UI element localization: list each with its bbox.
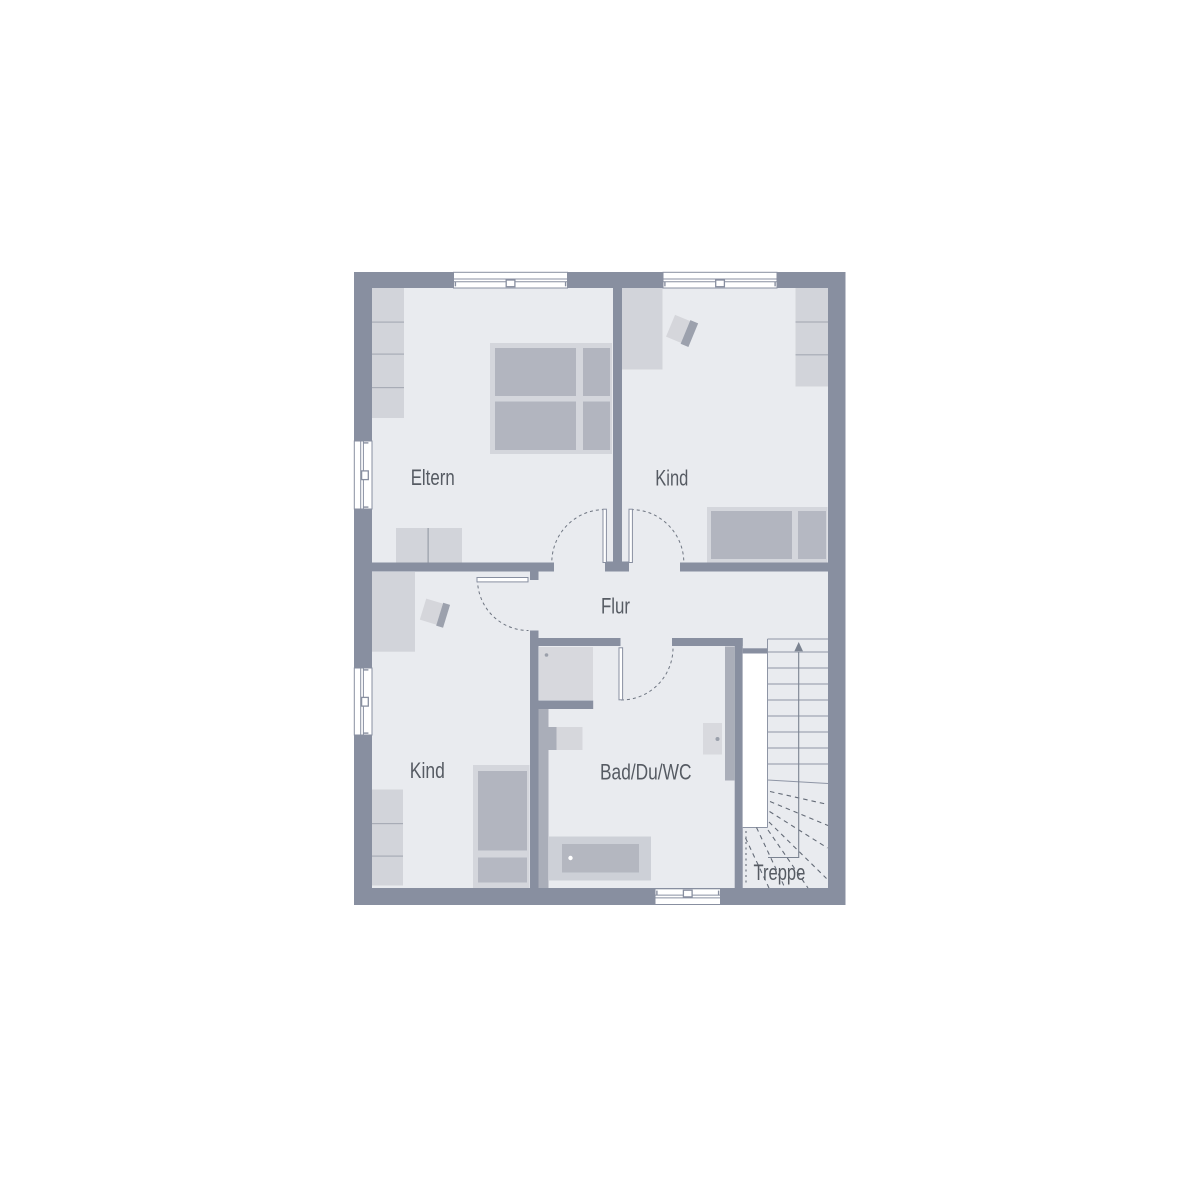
svg-text:Flur: Flur [601, 593, 630, 618]
svg-text:Kind: Kind [410, 758, 445, 783]
svg-text:Bad/Du/WC: Bad/Du/WC [600, 759, 692, 784]
svg-text:Treppe: Treppe [754, 860, 806, 885]
svg-text:Kind: Kind [655, 465, 688, 490]
svg-text:Eltern: Eltern [411, 465, 455, 490]
